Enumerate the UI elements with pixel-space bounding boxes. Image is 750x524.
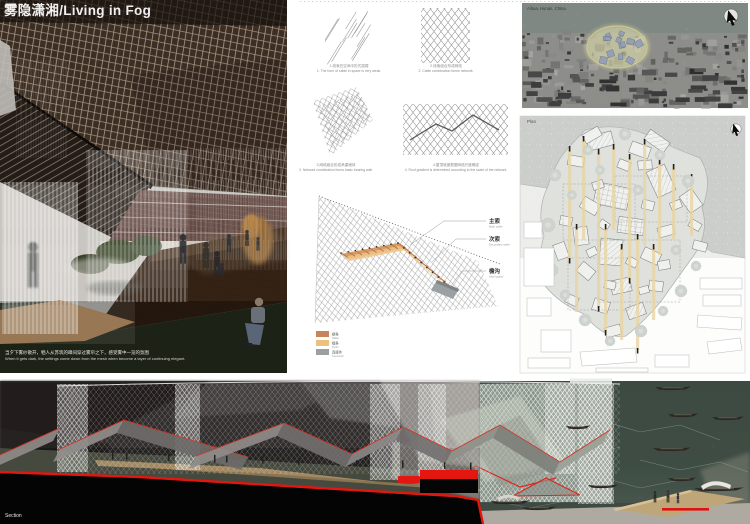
svg-text:连接件: 连接件	[332, 350, 343, 355]
svg-text:4. Roof gradient is determined: 4. Roof gradient is determined according…	[405, 168, 508, 172]
svg-text:1.线索在空间中形式感弱: 1.线索在空间中形式感弱	[330, 63, 369, 68]
svg-text:When it gets dark, the setting: When it gets dark, the settings come dow…	[5, 356, 185, 361]
svg-text:Section: Section	[5, 513, 22, 519]
svg-text:Main cable: Main cable	[489, 225, 503, 229]
svg-text:1. The form of cable in space: 1. The form of cable in space is very we…	[317, 69, 381, 73]
svg-text:Purlin: Purlin	[332, 345, 339, 349]
svg-text:Plan: Plan	[527, 119, 537, 124]
svg-text:3. Network combination forms b: 3. Network combination forms basic beari…	[299, 168, 373, 172]
svg-text:4.屋顶坡度根据网络尺度确定: 4.屋顶坡度根据网络尺度确定	[433, 162, 480, 167]
svg-text:Aihua, Hunan, China: Aihua, Hunan, China	[527, 6, 566, 11]
svg-text:2.线索组合形成网络: 2.线索组合形成网络	[430, 63, 462, 68]
svg-text:Steel gutter: Steel gutter	[489, 275, 503, 279]
svg-text:樼条: 樼条	[332, 332, 339, 337]
svg-text:雾隐潇湘/Living in Fog: 雾隐潇湘/Living in Fog	[3, 2, 151, 18]
svg-text:檁条: 檁条	[332, 341, 339, 346]
svg-text:Rafter: Rafter	[332, 336, 339, 340]
svg-text:当夕下雾纱散开，牺人从苏筑的暲间穿过雾帘之下，感受雾中一览的: 当夕下雾纱散开，牺人从苏筑的暲间穿过雾帘之下，感受雾中一览的氛围	[5, 349, 149, 356]
svg-text:Connector: Connector	[332, 354, 344, 358]
svg-text:Secondary cable: Secondary cable	[489, 243, 510, 247]
svg-text:3.网络组合形成承重墙体: 3.网络组合形成承重墙体	[317, 162, 356, 167]
svg-text:2. Cable combination forms net: 2. Cable combination forms network.	[418, 69, 473, 73]
